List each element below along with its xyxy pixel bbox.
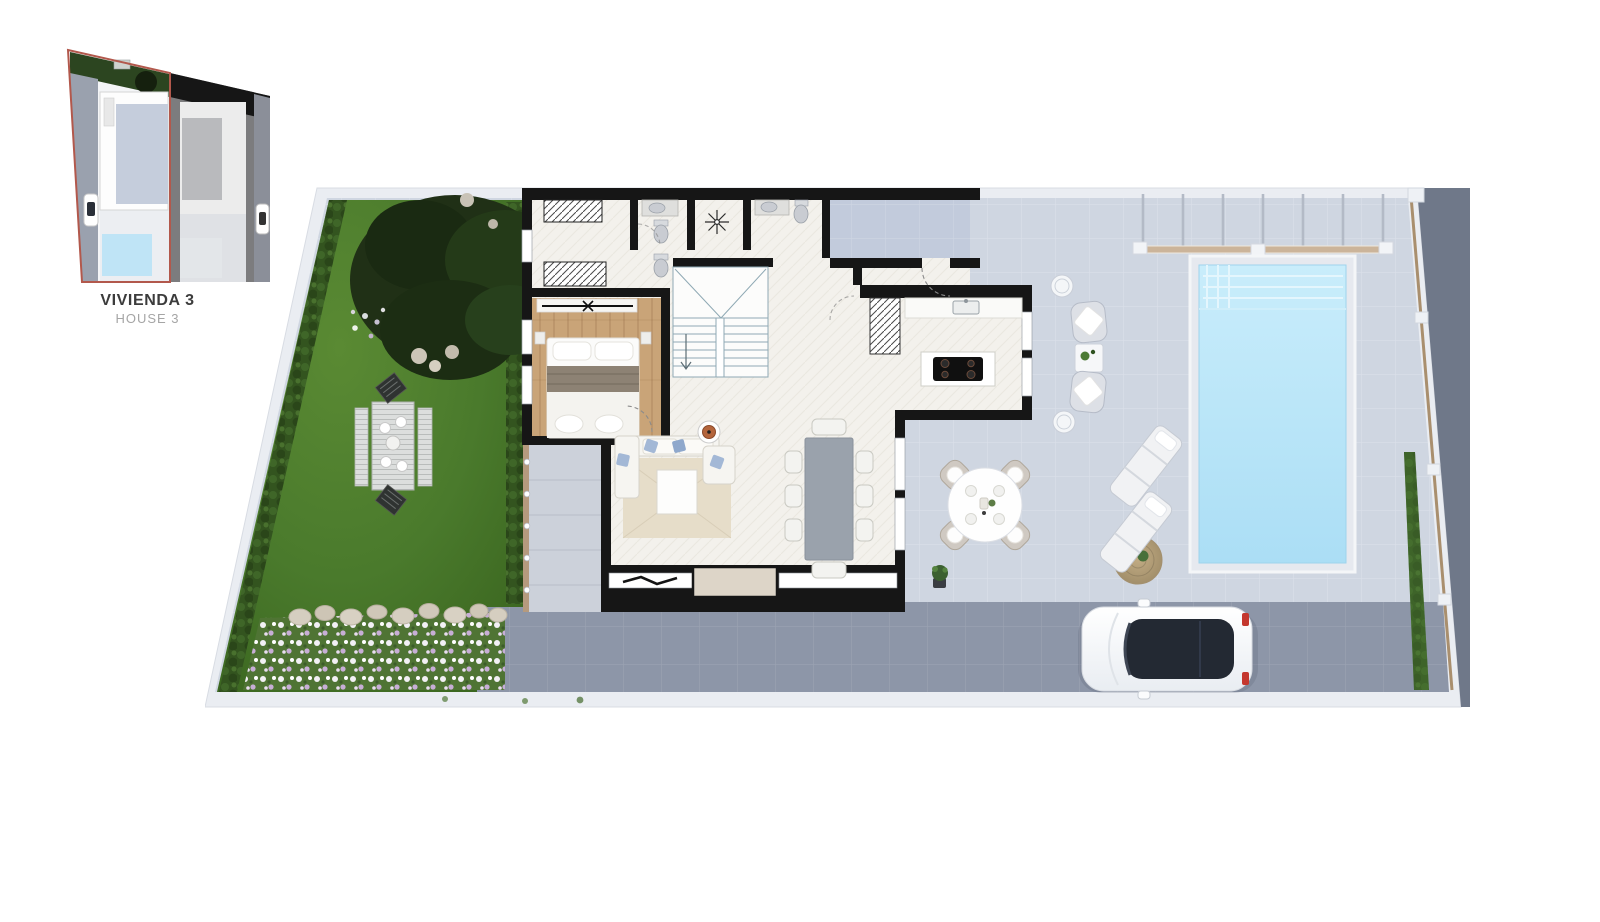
wc	[654, 254, 668, 277]
dining-table	[805, 438, 853, 560]
picnic-bench-left	[355, 408, 368, 486]
kitchen-island	[921, 352, 995, 386]
potted-plant	[932, 565, 948, 588]
floor-plan-page: VIVIENDA 3 HOUSE 3	[0, 0, 1600, 922]
floor-plan-graphic	[205, 170, 1470, 715]
pool	[1190, 256, 1355, 572]
round-side-table	[1051, 275, 1073, 297]
car-glass	[1126, 619, 1234, 679]
wicker-chair	[1070, 300, 1108, 343]
bedroom	[535, 332, 651, 438]
taillight	[1242, 613, 1249, 626]
driveway	[477, 602, 1449, 692]
main-floor-plan	[205, 170, 1470, 715]
bed	[547, 338, 639, 438]
inset-left-plot	[68, 50, 170, 282]
outdoor-dining-set	[937, 457, 1034, 554]
picnic-bench-right	[418, 408, 432, 486]
toilet-icon	[794, 205, 808, 223]
side-mirror	[1138, 691, 1150, 699]
taillight	[1242, 672, 1249, 685]
inset-left-car	[84, 194, 98, 226]
toilet-icon	[654, 259, 668, 277]
round-side-table	[1053, 411, 1075, 433]
side-table	[698, 421, 720, 443]
stairs	[673, 267, 768, 377]
wicker-chair	[1069, 370, 1107, 413]
side-deck	[523, 445, 601, 612]
car	[1078, 599, 1258, 699]
armchair	[703, 446, 735, 484]
side-mirror	[1138, 599, 1150, 607]
living-room	[615, 421, 735, 538]
pantry-shelves	[870, 298, 900, 354]
ceiling-light-icon	[705, 210, 729, 234]
cooktop	[933, 357, 983, 381]
coffee-table	[657, 470, 697, 514]
fireplace-panel	[693, 567, 777, 597]
